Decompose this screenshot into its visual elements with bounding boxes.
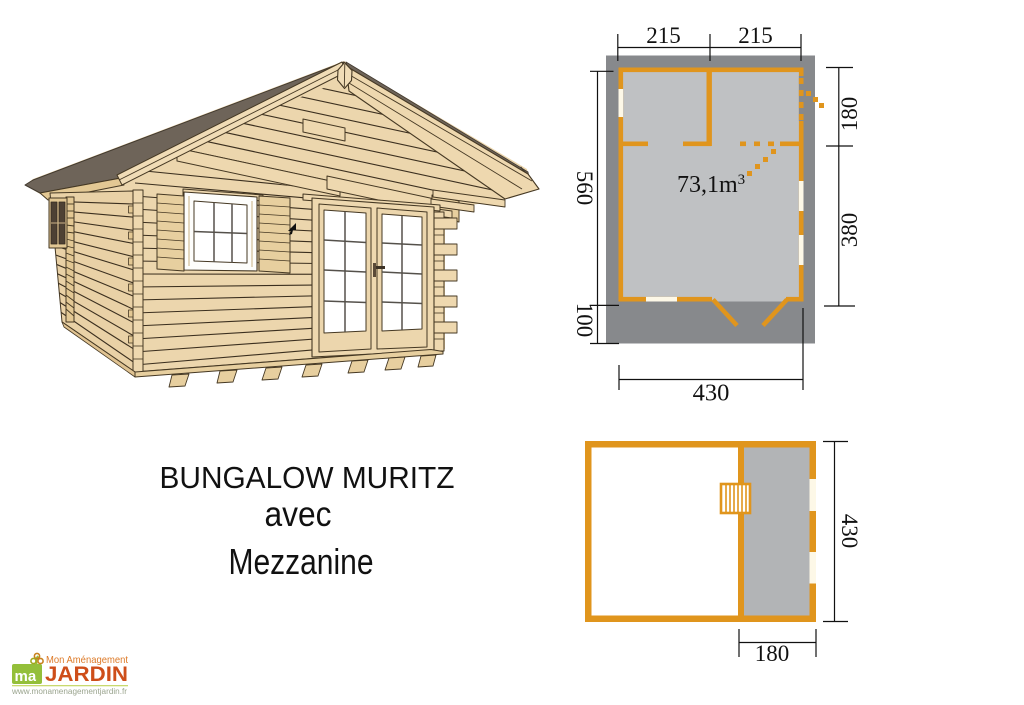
svg-text:380: 380 — [837, 213, 862, 248]
svg-text:BUNGALOW MURITZ: BUNGALOW MURITZ — [160, 460, 455, 495]
svg-text:ma: ma — [15, 668, 37, 685]
svg-text:avec: avec — [265, 495, 332, 534]
svg-text:215: 215 — [738, 23, 773, 48]
svg-text:430: 430 — [693, 380, 730, 407]
svg-text:Mezzanine: Mezzanine — [229, 541, 374, 582]
svg-text:73,1m3: 73,1m3 — [677, 172, 745, 198]
svg-text:180: 180 — [837, 97, 862, 132]
svg-text:560: 560 — [572, 171, 597, 206]
svg-text:180: 180 — [755, 641, 790, 666]
svg-text:430: 430 — [837, 514, 862, 549]
svg-text:JARDIN: JARDIN — [45, 662, 128, 686]
svg-text:www.monamenagementjardin.fr: www.monamenagementjardin.fr — [11, 687, 127, 696]
svg-text:215: 215 — [646, 23, 681, 48]
svg-text:100: 100 — [572, 303, 597, 338]
